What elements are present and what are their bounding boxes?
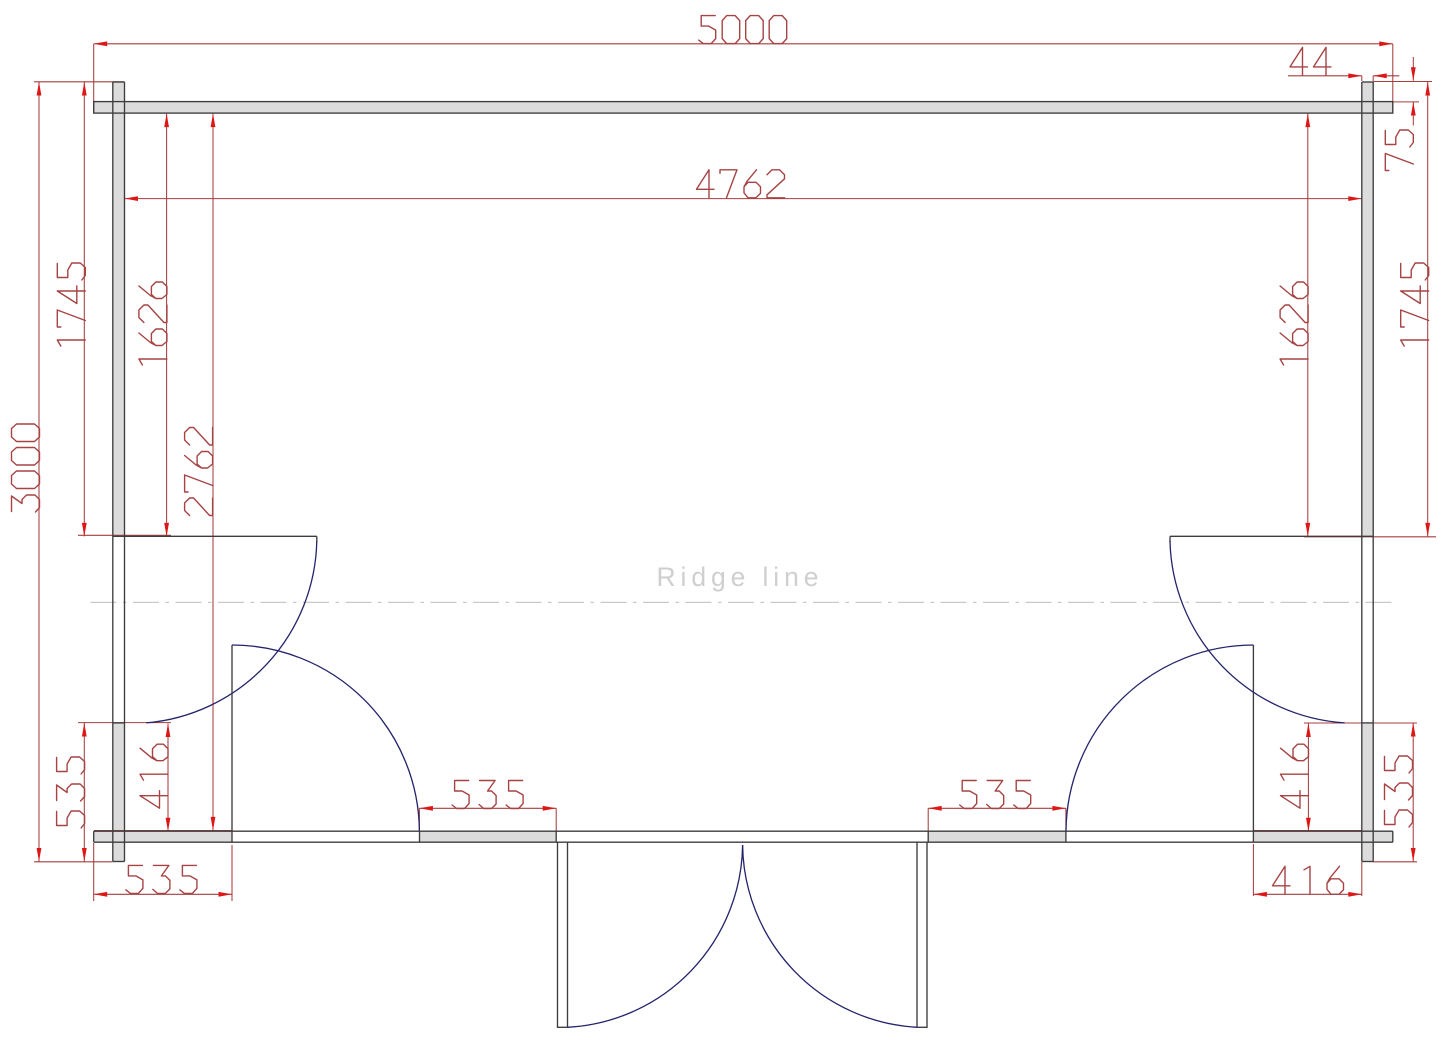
- svg-text:Ridge line: Ridge line: [657, 562, 824, 592]
